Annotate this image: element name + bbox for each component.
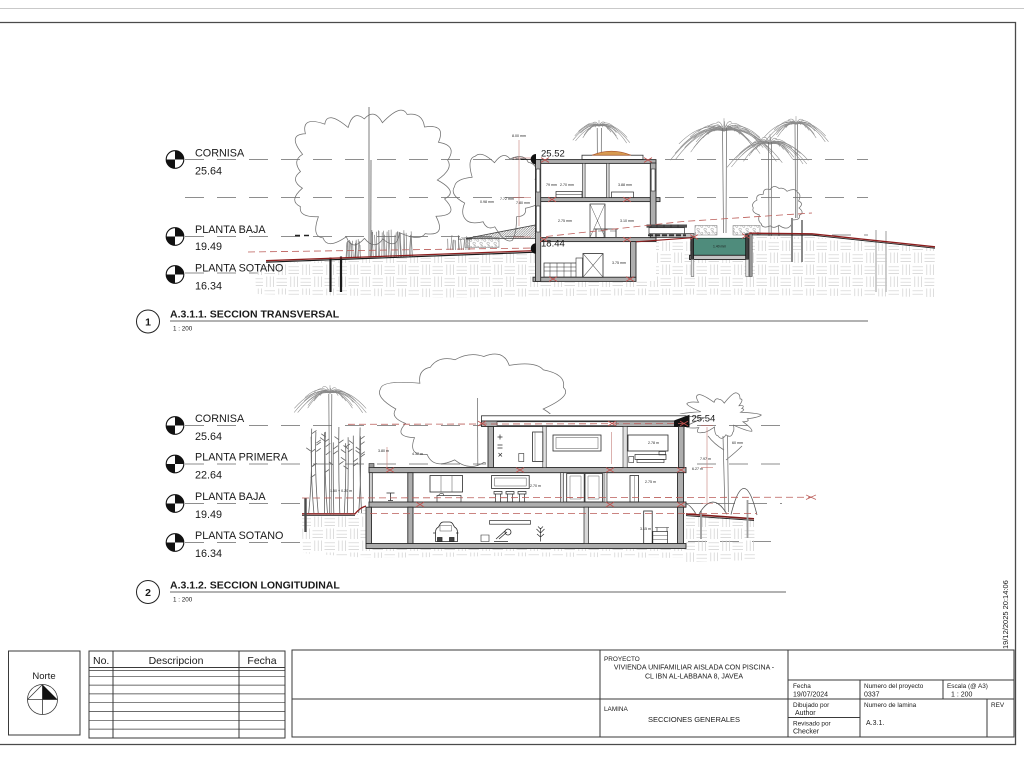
svg-text:Revisado por: Revisado por [793, 721, 832, 728]
svg-text:22.64: 22.64 [195, 470, 222, 482]
svg-text:7.80 mm: 7.80 mm [516, 201, 530, 205]
svg-text:Numero de lamina: Numero de lamina [864, 702, 917, 709]
svg-text:PLANTA SOTANO: PLANTA SOTANO [195, 530, 283, 542]
svg-text:60 mm: 60 mm [732, 441, 743, 445]
svg-text:3.80 m: 3.80 m [378, 449, 389, 453]
svg-text:19/12/2025 20:14:06: 19/12/2025 20:14:06 [1001, 580, 1010, 649]
svg-text:6.27 m: 6.27 m [692, 467, 703, 471]
svg-text:PROYECTO: PROYECTO [604, 656, 640, 663]
svg-text:PLANTA PRIMERA: PLANTA PRIMERA [195, 452, 289, 464]
svg-text:A.3.1.2. SECCION LONGITUDINAL: A.3.1.2. SECCION LONGITUDINAL [170, 580, 340, 592]
svg-text:16.34: 16.34 [195, 548, 222, 560]
svg-text:25.54: 25.54 [692, 413, 716, 424]
svg-text:Escala (@ A3): Escala (@ A3) [947, 683, 988, 690]
svg-text:2.75 m: 2.75 m [645, 480, 656, 484]
svg-text:18.44: 18.44 [541, 238, 565, 249]
svg-text:PLANTA SOTANO: PLANTA SOTANO [195, 263, 283, 275]
svg-text:1.40 mm: 1.40 mm [713, 245, 726, 249]
svg-text:25.64: 25.64 [195, 431, 222, 443]
svg-text:8.00 mm: 8.00 mm [512, 134, 526, 138]
svg-text:LAMINA: LAMINA [604, 706, 629, 713]
svg-text:3.88 mm: 3.88 mm [618, 183, 632, 187]
svg-text:CL IBN AL-LABBANA 8, JAVEA: CL IBN AL-LABBANA 8, JAVEA [645, 674, 743, 681]
svg-text:CORNISA: CORNISA [195, 413, 245, 425]
svg-text:2.70 mm: 2.70 mm [560, 183, 574, 187]
svg-text:1.20 mm: 1.20 mm [458, 237, 472, 241]
svg-text:0.98 mm: 0.98 mm [480, 200, 494, 204]
svg-text:A.3.1.1. SECCION TRANSVERSAL: A.3.1.1. SECCION TRANSVERSAL [170, 309, 340, 321]
svg-text:REV: REV [991, 702, 1005, 709]
svg-text:1: 1 [145, 317, 151, 329]
svg-text:VIVIENDA UNIFAMILIAR AISLADA C: VIVIENDA UNIFAMILIAR AISLADA CON PISCINA… [614, 665, 775, 672]
svg-text:19.49: 19.49 [195, 241, 222, 253]
svg-text:SECCIONES GENERALES: SECCIONES GENERALES [648, 715, 740, 724]
svg-text:3.15 m: 3.15 m [640, 527, 651, 531]
svg-text:CORNISA: CORNISA [195, 148, 245, 160]
svg-text:16.34: 16.34 [195, 281, 222, 293]
svg-text:1 : 200: 1 : 200 [951, 692, 973, 699]
svg-text:79 mm: 79 mm [546, 183, 557, 187]
svg-text:2: 2 [145, 587, 151, 599]
svg-text:7.97 m: 7.97 m [700, 457, 711, 461]
svg-text:Author: Author [795, 710, 816, 717]
svg-text:Norte: Norte [32, 671, 55, 682]
svg-text:19.49: 19.49 [195, 509, 222, 521]
svg-text:4.32 m: 4.32 m [412, 452, 423, 456]
svg-text:Descripcion: Descripcion [149, 655, 204, 667]
svg-text:3.75 mm: 3.75 mm [612, 261, 626, 265]
svg-text:PLANTA BAJA: PLANTA BAJA [195, 491, 266, 503]
svg-text:0337: 0337 [864, 692, 880, 699]
svg-text:PLANTA BAJA: PLANTA BAJA [195, 224, 266, 236]
svg-text:3.10 mm: 3.10 mm [620, 219, 634, 223]
svg-text:19/07/2024: 19/07/2024 [793, 692, 828, 699]
svg-text:7.72 mm: 7.72 mm [500, 197, 514, 201]
svg-text:A.3.1.: A.3.1. [866, 720, 884, 727]
svg-text:25.64: 25.64 [195, 166, 222, 178]
svg-text:25.52: 25.52 [541, 148, 565, 159]
svg-text:Checker: Checker [793, 729, 820, 736]
svg-text:No.: No. [93, 655, 109, 667]
svg-text:Fecha: Fecha [793, 683, 811, 690]
svg-text:Fecha: Fecha [247, 655, 276, 667]
svg-text:2.78 m: 2.78 m [648, 441, 659, 445]
svg-text:2.70 m: 2.70 m [530, 484, 541, 488]
svg-text:1 : 200: 1 : 200 [173, 326, 193, 333]
svg-text:2.75 mm: 2.75 mm [558, 219, 572, 223]
svg-text:1 : 200: 1 : 200 [173, 597, 193, 604]
svg-text:Numero del proyecto: Numero del proyecto [864, 683, 924, 690]
svg-text:Dibujado por: Dibujado por [793, 702, 830, 709]
svg-text:1.50 + 0.20 m: 1.50 + 0.20 m [330, 489, 352, 493]
